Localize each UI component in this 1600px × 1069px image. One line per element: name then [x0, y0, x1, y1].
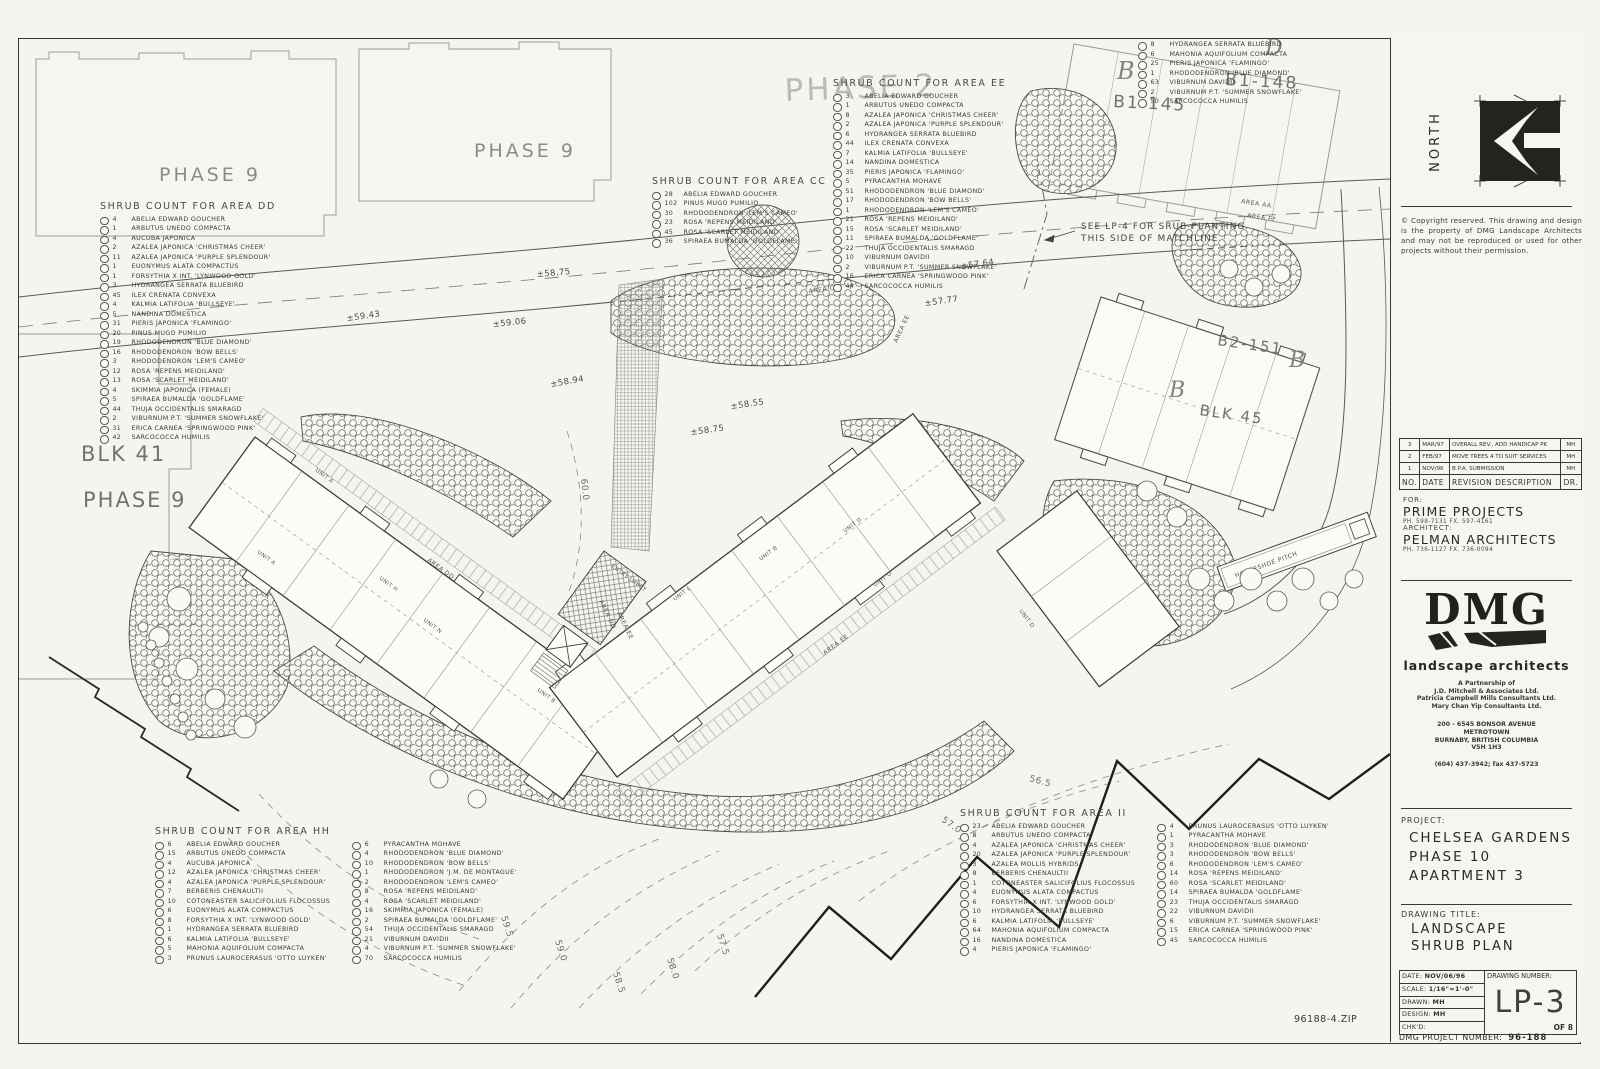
shrub-list-item: 6KALMIA LATIFOLIA 'BULLSEYE'	[155, 936, 330, 946]
shrub-list-item: 14SPIRAEA BUMALDA 'GOLDFLAME'	[1157, 889, 1329, 899]
dmg-project-number-row: DMG PROJECT NUMBER: 96-188	[1399, 1033, 1547, 1043]
dmg-phone: (604) 437-3942; fax 437-5723	[1391, 761, 1582, 768]
plant-symbol-icon	[1157, 938, 1166, 947]
matchline-note-line2: THIS SIDE OF MATCHLINE	[1080, 234, 1219, 244]
plant-symbol-icon	[100, 331, 109, 340]
shrub-list-item: 23ROSA 'REPENS MEIDILAND'	[652, 219, 827, 229]
revision-header-row: NO. DATE REVISION DESCRIPTION DR.	[1400, 475, 1582, 490]
plant-symbol-icon	[100, 426, 109, 435]
divider	[1401, 580, 1572, 581]
plant-symbol-icon	[155, 946, 164, 955]
shrub-list-item: 45SARCOCOCCA HUMILIS	[1157, 937, 1329, 947]
phase9-label: PHASE 9	[474, 140, 576, 162]
shrub-list-item: 1ARBUTUS UNEDO COMPACTA	[833, 102, 1006, 112]
client-block: FOR: PRIME PROJECTS PH. 598-7131 FX. 597…	[1403, 496, 1524, 525]
shrub-list-item: 31PIERIS JAPONICA 'FLAMINGO'	[100, 320, 276, 330]
shrub-list-item: 6MAHONIA AQUIFOLIUM COMPACTA	[1138, 51, 1302, 61]
shrub-list-item: 10RHODODENDRON 'BOW BELLS'	[352, 860, 516, 870]
phase9-label: PHASE 9	[159, 164, 261, 186]
plant-symbol-icon	[833, 274, 842, 283]
shrub-list-item: 2VIBURNUM P.T. 'SUMMER SNOWFLAKE'	[1138, 89, 1302, 99]
shrub-list-title: SHRUB COUNT FOR AREA II	[960, 810, 1329, 819]
shrub-list-area-cc: SHRUB COUNT FOR AREA CC 28ABELIA EDWARD …	[652, 178, 827, 248]
plant-symbol-icon	[1138, 99, 1147, 108]
plant-symbol-icon	[1138, 42, 1147, 51]
shrub-list-title: SHRUB COUNT FOR AREA DD	[100, 203, 276, 212]
plant-symbol-icon	[100, 283, 109, 292]
client-name: PRIME PROJECTS	[1403, 504, 1524, 519]
shrub-list-item: 1COTONEASTER SALICIFOLIUS FLOCOSSUS	[960, 880, 1135, 890]
plant-symbol-icon	[960, 843, 969, 852]
shrub-list-item: 3PRUNUS LAUROCERASUS 'OTTO LUYKEN'	[155, 955, 330, 965]
shrub-list-item: 1RHODODENDRON 'BLUE DIAMOND'	[1138, 70, 1302, 80]
plant-symbol-icon	[100, 369, 109, 378]
shrub-list-item: 54THUJA OCCIDENTALIS SMARAGD	[352, 926, 516, 936]
plant-symbol-icon	[155, 908, 164, 917]
shrub-list-item: 20PINUS MUGO PUMILIO	[100, 330, 276, 340]
shrub-list-item: 13ROSA 'SCARLET MEIDILAND'	[100, 377, 276, 387]
shrub-list-area-hh: SHRUB COUNT FOR AREA HH 6ABELIA EDWARD G…	[155, 828, 517, 964]
shrub-list-item: 1PYRACANTHA MOHAVE	[1157, 832, 1329, 842]
shrub-list-item: 8AZALEA JAPONICA 'CHRISTMAS CHEER'	[833, 112, 1006, 122]
plant-symbol-icon	[100, 264, 109, 273]
shrub-list-item: 16SKIMMIA JAPONICA (FEMALE)	[352, 907, 516, 917]
plant-symbol-icon	[100, 293, 109, 302]
building-letter: B	[1168, 378, 1185, 403]
shrub-list-item: 8BERBERIS CHENAULTII	[960, 870, 1135, 880]
plant-symbol-icon	[833, 103, 842, 112]
shrub-list-item: 20AZALEA JAPONICA 'PURPLE SPLENDOUR'	[960, 851, 1135, 861]
revision-row: 1NOV/96 B.P.A. SUBMISSIONMH	[1400, 463, 1582, 475]
plant-symbol-icon	[352, 870, 361, 879]
shrub-list-item: 4AZALEA JAPONICA 'CHRISTMAS CHEER'	[960, 842, 1135, 852]
plant-symbol-icon	[1157, 852, 1166, 861]
shrub-list-item: 3RHODODENDRON 'BLUE DIAMOND'	[1157, 842, 1329, 852]
dmg-logo: DMG	[1391, 590, 1582, 630]
shrub-list-item: 23THUJA OCCIDENTALIS SMARAGD	[1157, 899, 1329, 909]
shrub-list-item: 21VIBURNUM DAVIDII	[352, 936, 516, 946]
dmg-logo-graphic-icon	[1426, 630, 1548, 652]
shrub-list-item: 10HYDRANGEA SERRATA BLUEBIRD	[960, 908, 1135, 918]
plant-symbol-icon	[833, 217, 842, 226]
shrub-list-item: 3RHODODENDRON 'LEM'S CAMEO'	[100, 358, 276, 368]
contour-label: 58.0	[664, 957, 680, 981]
plant-symbol-icon	[652, 201, 661, 210]
shrub-list-item: 4PIERIS JAPONICA 'FLAMINGO'	[960, 946, 1135, 956]
plant-symbol-icon	[1138, 90, 1147, 99]
shrub-list-item: 70SARCOCOCCA HUMILIS	[352, 955, 516, 965]
plant-symbol-icon	[155, 937, 164, 946]
plant-symbol-icon	[155, 851, 164, 860]
plant-symbol-icon	[155, 956, 164, 965]
plant-symbol-icon	[155, 880, 164, 889]
architect-label: ARCHITECT:	[1403, 524, 1557, 532]
plant-symbol-icon	[100, 217, 109, 226]
shrub-list-item: 36SPIRAEA BUMALDA 'GOLDFLAME'	[652, 238, 827, 248]
plant-symbol-icon	[352, 861, 361, 870]
shrub-list-item: 4VIBURNUM P.T. 'SUMMER SNOWFLAKE'	[352, 945, 516, 955]
plant-symbol-icon	[960, 833, 969, 842]
plant-symbol-icon	[352, 918, 361, 927]
shrub-list-item: 1RHODODENDRON 'J.M. DE MONTAGUE'	[352, 869, 516, 879]
shrub-list-item: 4SKIMMIA JAPONICA (FEMALE)	[100, 387, 276, 397]
plant-symbol-icon	[652, 192, 661, 201]
shrub-list-item: 1EUONYMUS ALATA COMPACTUS	[100, 263, 276, 273]
architect-name: PELMAN ARCHITECTS	[1403, 532, 1557, 547]
shrub-list-item: 3RHODODENDRON 'BOW BELLS'	[1157, 851, 1329, 861]
plant-symbol-icon	[100, 321, 109, 330]
shrub-list-item: 16RHODODENDRON 'BOW BELLS'	[100, 349, 276, 359]
spot-elevation: ±59.06	[492, 316, 527, 329]
plant-symbol-icon	[1157, 833, 1166, 842]
date-row: DATE: NOV/06/96	[1400, 971, 1484, 984]
shrub-list-item: 28ABELIA EDWARD GOUCHER	[652, 191, 827, 201]
copyright-note: © Copyright reserved. This drawing and d…	[1401, 216, 1582, 256]
plant-symbol-icon	[833, 179, 842, 188]
divider	[1401, 808, 1572, 809]
plant-symbol-icon	[960, 919, 969, 928]
shrub-list-item: 5PYRACANTHA MOHAVE	[833, 178, 1006, 188]
area-ee-label: AREA EE	[892, 314, 911, 344]
shrub-list-item: 51RHODODENDRON 'BLUE DIAMOND'	[833, 188, 1006, 198]
plant-symbol-icon	[352, 880, 361, 889]
sheet-of-note: OF 8	[1554, 1023, 1573, 1032]
plant-symbol-icon	[352, 908, 361, 917]
plant-symbol-icon	[833, 255, 842, 264]
shrub-list-item: 42SARCOCOCCA HUMILIS	[100, 434, 276, 444]
shrub-list-item: 2VIBURNUM P.T. 'SUMMER SNOWFLAKE'	[833, 264, 1006, 274]
plant-symbol-icon	[833, 265, 842, 274]
shrub-list-area-ee: SHRUB COUNT FOR AREA EE 3ABELIA EDWARD G…	[833, 80, 1006, 292]
shrub-list-item: 60ROSA 'SCARLET MEIDILAND'	[1157, 880, 1329, 890]
plant-symbol-icon	[1157, 843, 1166, 852]
drawing-title-block: DRAWING TITLE: LANDSCAPE SHRUB PLAN	[1401, 910, 1515, 955]
drawing-sheet: HORSESHOE PITCH	[0, 0, 1600, 1069]
plant-symbol-icon	[155, 927, 164, 936]
shrub-list-item: 4AUCUBA JAPONICA	[100, 235, 276, 245]
plant-symbol-icon	[100, 340, 109, 349]
shrub-list-title: SHRUB COUNT FOR AREA HH	[155, 828, 517, 837]
shrub-list-item: 6HYDRANGEA SERRATA BLUEBIRD	[833, 131, 1006, 141]
shrub-list-item: 25PIERIS JAPONICA 'FLAMINGO'	[1138, 60, 1302, 70]
plant-symbol-icon	[1157, 900, 1166, 909]
plant-symbol-icon	[352, 927, 361, 936]
blk41-label: BLK 41	[81, 442, 166, 466]
plant-symbol-icon	[155, 918, 164, 927]
plant-symbol-icon	[833, 189, 842, 198]
plant-symbol-icon	[960, 909, 969, 918]
shrub-list-area-dd: SHRUB COUNT FOR AREA DD 4ABELIA EDWARD G…	[100, 203, 276, 444]
shrub-list-item: 6VIBURNUM P.T. 'SUMMER SNOWFLAKE'	[1157, 918, 1329, 928]
architect-phone: PH. 736-1127 FX. 736-0094	[1403, 547, 1557, 553]
dmg-logo-block: DMG landscape architects A Partnership o…	[1391, 590, 1582, 768]
shrub-list-item: 44THUJA OCCIDENTALIS SMARAGD	[100, 406, 276, 416]
shrub-list-item: 15ROSA 'SCARLET MEIDILAND'	[833, 226, 1006, 236]
plant-symbol-icon	[155, 889, 164, 898]
plant-symbol-icon	[960, 928, 969, 937]
shrub-list-item: 19RHODODENDRON 'BLUE DIAMOND'	[100, 339, 276, 349]
shrub-list-item: 21ROSA 'REPENS MEIDILAND'	[833, 216, 1006, 226]
shrub-list-item: 1HYDRANGEA SERRATA BLUEBIRD	[155, 926, 330, 936]
shrub-list-item: 14ROSA 'REPENS MEIDILAND'	[1157, 870, 1329, 880]
unit-label: UNIT D	[1017, 609, 1035, 630]
plant-symbol-icon	[100, 435, 109, 444]
drawing-number: LP-3	[1485, 985, 1576, 1020]
plant-symbol-icon	[833, 151, 842, 160]
contour-label: 58.5	[610, 971, 626, 995]
shrub-list-item: 11SPIRAEA BUMALDA 'GOLDFLAME'	[833, 235, 1006, 245]
shrub-list-item: 17RHODODENDRON 'BOW BELLS'	[833, 197, 1006, 207]
plant-symbol-icon	[833, 132, 842, 141]
drawing-number-label: DRAWING NUMBER:	[1487, 972, 1552, 980]
shrub-list-item: 45ILEX CRENATA CONVEXA	[100, 292, 276, 302]
shrub-list-item: 6EUONYMUS ALATA COMPACTUS	[155, 907, 330, 917]
shrub-list-item: 4KALMIA LATIFOLIA 'BULLSEYE'	[100, 301, 276, 311]
contour-label: 59.0	[552, 939, 568, 963]
spot-elevation: ±58.75	[536, 267, 571, 280]
plant-symbol-icon	[352, 851, 361, 860]
plant-symbol-icon	[833, 160, 842, 169]
shrub-list-item: 2RHODODENDRON 'LEM'S CAMEO'	[352, 879, 516, 889]
shrub-list-item: 1FORSYTHIA X INT. 'LYNWOOD GOLD'	[100, 273, 276, 283]
shrub-list-item: 7KALMIA LATIFOLIA 'BULLSEYE'	[833, 150, 1006, 160]
plant-symbol-icon	[100, 378, 109, 387]
building-letter: B	[1288, 348, 1305, 373]
plant-symbol-icon	[833, 113, 842, 122]
shrub-list-item: 35PIERIS JAPONICA 'FLAMINGO'	[833, 169, 1006, 179]
plant-symbol-icon	[100, 255, 109, 264]
scale-row: SCALE: 1/16"=1'-0"	[1400, 984, 1484, 997]
shrub-list-item: 50SARCOCOCCA HUMILIS	[1138, 98, 1302, 108]
central-building-complex	[176, 401, 1179, 812]
contour-label: 60.0	[578, 478, 590, 501]
shrub-list-item: 64MAHONIA AQUIFOLIUM COMPACTA	[960, 927, 1135, 937]
plant-symbol-icon	[100, 245, 109, 254]
plant-symbol-icon	[1157, 909, 1166, 918]
spot-elevation: ±58.75	[690, 423, 725, 438]
plant-symbol-icon	[100, 236, 109, 245]
project-label: PROJECT:	[1401, 816, 1572, 825]
plant-symbol-icon	[833, 94, 842, 103]
plant-symbol-icon	[1157, 881, 1166, 890]
shrub-list-item: 22THUJA OCCIDENTALIS SMARAGD	[833, 245, 1006, 255]
plant-symbol-icon	[1138, 71, 1147, 80]
plant-symbol-icon	[833, 208, 842, 217]
plant-symbol-icon	[960, 900, 969, 909]
shrub-list-item: 45ROSA 'SCARLET MEIDILAND'	[652, 229, 827, 239]
drawing-title-label: DRAWING TITLE:	[1401, 910, 1515, 919]
shrub-list-item: 7BERBERIS CHENAULTII	[155, 888, 330, 898]
shrub-list-item: 6KALMIA LATIFOLIA 'BULLSEYE'	[960, 918, 1135, 928]
plant-symbol-icon	[960, 881, 969, 890]
plant-symbol-icon	[833, 170, 842, 179]
shrub-list-item: 8HYDRANGEA SERRATA BLUEBIRD	[1138, 41, 1302, 51]
shrub-list-item: 12AZALEA JAPONICA 'CHRISTMAS CHEER'	[155, 869, 330, 879]
spot-elevation: ±57.77	[924, 294, 959, 309]
shrub-list-item: 4AUCUBA JAPONICA	[155, 860, 330, 870]
shrub-list-item: 5NANDINA DOMESTICA	[100, 311, 276, 321]
shrub-list-item: 11AZALEA JAPONICA 'PURPLE SPLENDOUR'	[100, 254, 276, 264]
shrub-list-item: 1RHODODENDRON 'LEM'S CAMEO'	[833, 207, 1006, 217]
title-block: NORTH © Copyright reserved. This drawing…	[1390, 38, 1582, 1042]
shrub-list-item: 4ABELIA EDWARD GOUCHER	[100, 216, 276, 226]
plant-symbol-icon	[960, 947, 969, 956]
plant-symbol-icon	[652, 230, 661, 239]
spot-elevation: ±58.55	[730, 397, 765, 412]
plant-symbol-icon	[100, 350, 109, 359]
plant-symbol-icon	[1157, 928, 1166, 937]
dmg-project-number: 96-188	[1508, 1033, 1547, 1043]
shrub-list-top-right: 8HYDRANGEA SERRATA BLUEBIRD6MAHONIA AQUI…	[1138, 41, 1302, 108]
shrub-list-item: 3ABELIA EDWARD GOUCHER	[833, 93, 1006, 103]
revision-row: 2FEB/97 MOVE TREES 4 TO SUIT SERVICESMH	[1400, 451, 1582, 463]
plant-symbol-icon	[100, 226, 109, 235]
shrub-list-item: 6PYRACANTHA MOHAVE	[352, 841, 516, 851]
shrub-list-item: 16NANDINA DOMESTICA	[960, 937, 1135, 947]
shrub-list-item: 30RHODODENDRON 'LEM'S CAMEO'	[652, 210, 827, 220]
shrub-list-item: 44SARCOCOCCA HUMILIS	[833, 283, 1006, 293]
shrub-list-item: 4ROSA 'SCARLET MEIDILAND'	[352, 898, 516, 908]
shrub-list-title: SHRUB COUNT FOR AREA EE	[833, 80, 1006, 89]
shrub-list-item: 14NANDINA DOMESTICA	[833, 159, 1006, 169]
plant-symbol-icon	[833, 122, 842, 131]
plant-symbol-icon	[100, 388, 109, 397]
plant-symbol-icon	[833, 198, 842, 207]
shrub-list-item: 31ERICA CARNEA 'SPRINGWOOD PINK'	[100, 425, 276, 435]
plant-symbol-icon	[352, 946, 361, 955]
shrub-list-item: 2SPIRAEA BUMALDA 'GOLDFLAME'	[352, 917, 516, 927]
north-arrow-icon	[1472, 93, 1568, 189]
plant-symbol-icon	[352, 956, 361, 965]
plant-symbol-icon	[833, 227, 842, 236]
plant-symbol-icon	[833, 236, 842, 245]
shrub-list-item: 4AZALEA JAPONICA 'PURPLE SPLENDOUR'	[155, 879, 330, 889]
matchline-note-line1: SEE LP-4 FOR SRUB PLANTING	[1081, 222, 1246, 232]
plant-symbol-icon	[960, 890, 969, 899]
plant-symbol-icon	[352, 842, 361, 851]
dmg-partnership: A Partnership of J.D. Mitchell & Associa…	[1391, 680, 1582, 710]
contour-label: 57.5	[714, 933, 730, 957]
plant-symbol-icon	[960, 862, 969, 871]
plant-symbol-icon	[352, 937, 361, 946]
plant-symbol-icon	[652, 220, 661, 229]
entry-walkway	[611, 279, 663, 551]
plant-symbol-icon	[100, 416, 109, 425]
shrub-list-item: 15ARBUTUS UNEDO COMPACTA	[155, 850, 330, 860]
plant-symbol-icon	[960, 871, 969, 880]
shrub-list-item: 4RHODODENDRON 'BLUE DIAMOND'	[352, 850, 516, 860]
plant-symbol-icon	[100, 274, 109, 283]
shrub-list-item: 6RHODODENDRON 'LEM'S CAMEO'	[1157, 861, 1329, 871]
contour-label: 56.5	[1028, 774, 1052, 789]
shrub-list-item: 23ABELIA EDWARD GOUCHER	[960, 823, 1135, 833]
shrub-list-item: 12ROSA 'REPENS MEIDILAND'	[100, 368, 276, 378]
plant-symbol-icon	[1157, 919, 1166, 928]
plant-symbol-icon	[352, 899, 361, 908]
shrub-list-item: 8FORSYTHIA X INT. 'LYNWOOD GOLD'	[155, 917, 330, 927]
plant-symbol-icon	[833, 246, 842, 255]
note-leader	[1045, 231, 1075, 242]
shrub-list-item: 16ERICA CARNEA 'SPRINGWOOD PINK'	[833, 273, 1006, 283]
plant-symbol-icon	[833, 284, 842, 293]
info-table: DATE: NOV/06/96 SCALE: 1/16"=1'-0" DRAWN…	[1399, 970, 1577, 1035]
for-label: FOR:	[1403, 496, 1524, 504]
plant-symbol-icon	[100, 312, 109, 321]
shrub-list-item: 63VIBURNUM DAVIDII	[1138, 79, 1302, 89]
plant-symbol-icon	[1138, 61, 1147, 70]
plant-symbol-icon	[100, 302, 109, 311]
shrub-list-item: 1ARBUTUS UNEDO COMPACTA	[100, 225, 276, 235]
plant-symbol-icon	[155, 870, 164, 879]
drawing-number-cell: DRAWING NUMBER: LP-3 OF 8	[1485, 971, 1576, 1034]
shrub-list-item: 15ERICA CARNEA 'SPRINGWOOD PINK'	[1157, 927, 1329, 937]
shrub-list-item: 5SPIRAEA BUMALDA 'GOLDFLAME'	[100, 396, 276, 406]
shrub-list-item: 2VIBURNUM P.T. 'SUMMER SNOWFLAKE'	[100, 415, 276, 425]
dmg-tagline: landscape architects	[1391, 658, 1582, 673]
plant-symbol-icon	[1157, 890, 1166, 899]
plant-symbol-icon	[1138, 52, 1147, 61]
shrub-list-item: 2AZALEA JAPONICA 'PURPLE SPLENDOUR'	[833, 121, 1006, 131]
divider	[1401, 206, 1572, 207]
shrub-list-item: 3AZALEA MOLLIS HYBRIDS	[960, 861, 1135, 871]
shrub-list-area-ii: SHRUB COUNT FOR AREA II 23ABELIA EDWARD …	[960, 810, 1329, 956]
plant-symbol-icon	[833, 141, 842, 150]
shrub-list-item: 102PINUS MUGO PUMILIO	[652, 200, 827, 210]
shrub-list-item: 5MAHONIA AQUIFOLIUM COMPACTA	[155, 945, 330, 955]
revision-row: 3MAR/97 OVERALL REV., ADD HANDICAP PKMH	[1400, 439, 1582, 451]
plant-symbol-icon	[1138, 80, 1147, 89]
architect-block: ARCHITECT: PELMAN ARCHITECTS PH. 736-112…	[1403, 524, 1557, 553]
design-row: DESIGN: MH	[1400, 1009, 1484, 1022]
shrub-list-item: 8ROSA 'REPENS MEIDILAND'	[352, 888, 516, 898]
plant-symbol-icon	[960, 938, 969, 947]
shrub-list-title: SHRUB COUNT FOR AREA CC	[652, 178, 827, 187]
shrub-list-item: 10COTONEASTER SALICIFOLIUS FLOCOSSUS	[155, 898, 330, 908]
shrub-list-item: 6FORSYTHIA X INT. 'LYNWOOD GOLD'	[960, 899, 1135, 909]
building-letter: B	[1116, 57, 1135, 85]
shrub-list-item: 4PRUNUS LAUROCERASUS 'OTTO LUYKEN'	[1157, 823, 1329, 833]
divider	[1401, 904, 1572, 905]
shrub-list-item: 3HYDRANGEA SERRATA BLUEBIRD	[100, 282, 276, 292]
plant-symbol-icon	[155, 861, 164, 870]
plant-symbol-icon	[155, 842, 164, 851]
shrub-list-item: 4EUONYMUS ALATA COMPACTUS	[960, 889, 1135, 899]
plant-symbol-icon	[960, 824, 969, 833]
north-label: NORTH	[1428, 111, 1443, 172]
north-indicator: NORTH	[1391, 93, 1582, 189]
plant-symbol-icon	[352, 889, 361, 898]
project-block: PROJECT: CHELSEA GARDENS PHASE 10 APARTM…	[1401, 816, 1572, 886]
spot-elevation: ±58.94	[550, 374, 585, 390]
phase9-label: PHASE 9	[83, 488, 186, 512]
plant-symbol-icon	[1157, 871, 1166, 880]
file-note: 96188-4.ZIP	[1294, 1014, 1357, 1025]
shrub-list-item: 6ABELIA EDWARD GOUCHER	[155, 841, 330, 851]
plant-symbol-icon	[100, 407, 109, 416]
plant-symbol-icon	[960, 852, 969, 861]
plant-symbol-icon	[652, 239, 661, 248]
plant-symbol-icon	[652, 211, 661, 220]
spot-elevation: ±59.43	[346, 309, 381, 324]
plant-symbol-icon	[100, 359, 109, 368]
shrub-list-item: 44ILEX CRENATA CONVEXA	[833, 140, 1006, 150]
plant-symbol-icon	[1157, 824, 1166, 833]
plant-symbol-icon	[100, 397, 109, 406]
revision-table: 3MAR/97 OVERALL REV., ADD HANDICAP PKMH …	[1399, 438, 1582, 490]
plant-symbol-icon	[155, 899, 164, 908]
dmg-address: 200 - 6545 BONSOR AVENUE METROTOWN BURNA…	[1391, 721, 1582, 751]
shrub-list-item: 10VIBURNUM DAVIDII	[833, 254, 1006, 264]
